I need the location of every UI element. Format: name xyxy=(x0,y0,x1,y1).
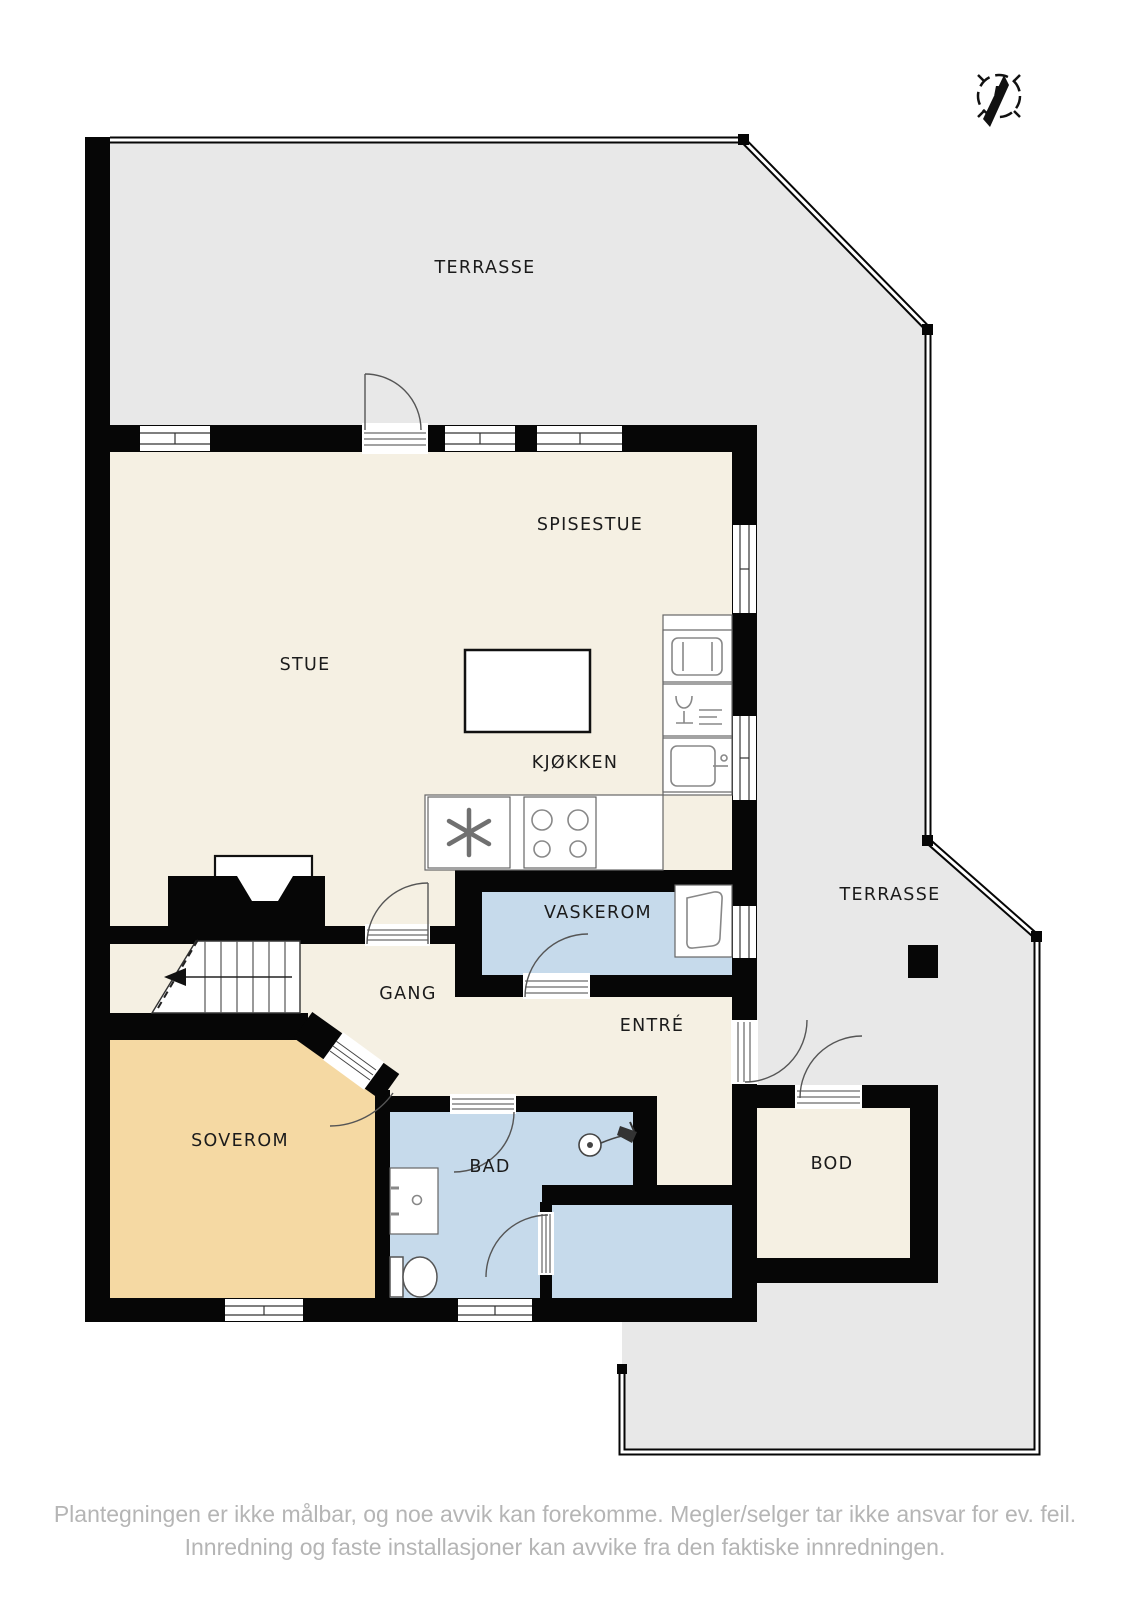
disclaimer-line-2: Innredning og faste installasjoner kan a… xyxy=(185,1534,946,1560)
disclaimer-text: Plantegningen er ikke målbar, og noe avv… xyxy=(54,1501,1076,1560)
room-label-stue: STUE xyxy=(280,655,331,675)
floor-plan-page: N TERRASSE SPISESTUE STUE KJØKKEN VASKER… xyxy=(0,0,1131,1600)
room-label-spisestue: SPISESTUE xyxy=(537,515,643,535)
window xyxy=(733,906,756,958)
room-label-terrasse-top: TERRASSE xyxy=(433,258,535,278)
laundry-sink-icon xyxy=(675,885,732,957)
room-label-terrasse-right: TERRASSE xyxy=(838,885,940,905)
toilet-icon xyxy=(390,1257,437,1297)
stove-icon xyxy=(524,797,596,868)
window xyxy=(733,716,756,800)
window xyxy=(733,525,756,613)
kitchen-sink-icon xyxy=(663,738,732,792)
room-label-kjokken: KJØKKEN xyxy=(532,753,619,773)
floor-plan-canvas: N TERRASSE SPISESTUE STUE KJØKKEN VASKER… xyxy=(0,0,1131,1600)
compass-needle xyxy=(983,75,1009,127)
kitchen-island xyxy=(465,650,590,732)
window xyxy=(445,426,515,451)
room-dusjrom xyxy=(552,1202,732,1298)
room-label-entre: ENTRÉ xyxy=(620,1014,685,1036)
cooker-hood-icon xyxy=(428,797,510,868)
vanity-sink-icon xyxy=(390,1168,438,1234)
window xyxy=(537,426,622,451)
terrace-pillar xyxy=(908,945,938,978)
room-label-vaskerom: VASKEROM xyxy=(544,903,652,923)
window xyxy=(140,426,210,451)
disclaimer-line-1: Plantegningen er ikke målbar, og noe avv… xyxy=(54,1501,1076,1527)
compass-icon: N xyxy=(978,75,1020,127)
room-label-bod: BOD xyxy=(811,1154,854,1174)
compass-north-label: N xyxy=(994,84,1004,98)
window xyxy=(458,1299,532,1321)
dishwasher-icon xyxy=(663,684,732,736)
oven-icon xyxy=(663,630,732,682)
room-soverom xyxy=(110,1040,390,1298)
room-label-gang: GANG xyxy=(379,984,436,1004)
window xyxy=(225,1299,303,1321)
room-label-soverom: SOVEROM xyxy=(191,1131,289,1151)
room-label-bad: BAD xyxy=(469,1157,510,1177)
